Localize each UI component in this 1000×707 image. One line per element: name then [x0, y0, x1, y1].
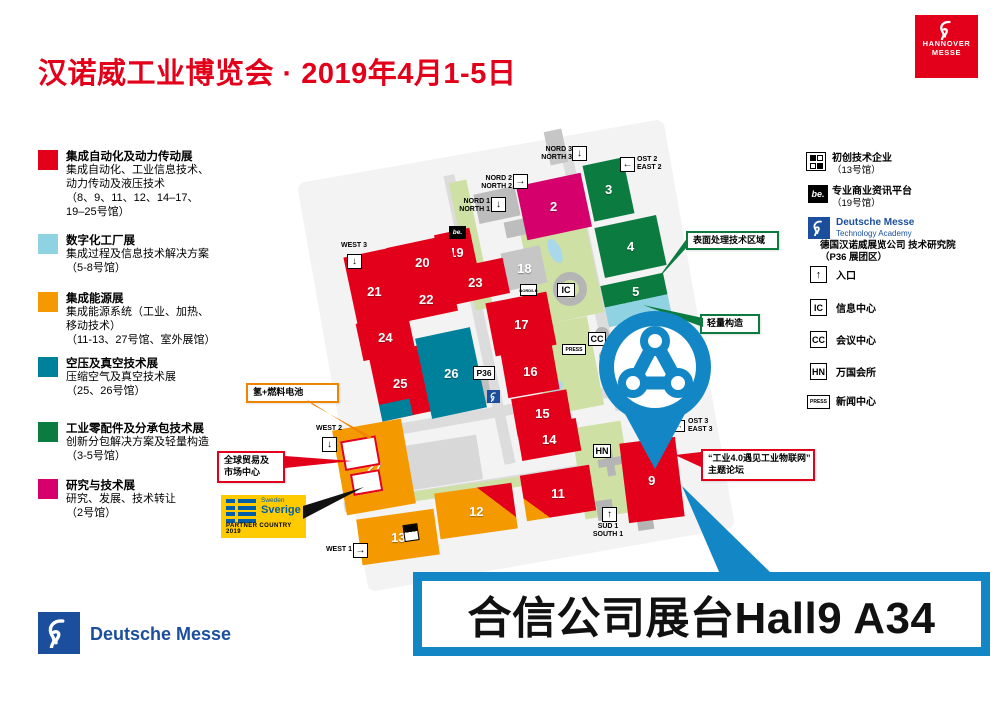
hall-27-open-area	[340, 435, 381, 471]
hannover-messe-logo: HANNOVER MESSE	[915, 15, 978, 78]
legend-item-line: 动力传动及液压技术	[66, 178, 209, 192]
map-nordlb-marker: NORD/LB	[520, 284, 537, 296]
entrance-arrow-nord1: ↓	[491, 197, 506, 212]
startup-companies-icon	[806, 152, 826, 171]
entrance-arrow-sued1: ↑	[602, 507, 617, 522]
entrance-arrow-icon: ↑	[810, 266, 827, 283]
legend-item-line: 压缩空气及真空技术展	[66, 371, 176, 385]
legend-hn-club: 万国会所	[836, 367, 876, 380]
hannover-logo-text-2: MESSE	[932, 49, 961, 58]
legend-item-title: 空压及真空技术展	[66, 357, 176, 371]
legend-be: 专业商业资讯平台（19号馆）	[832, 185, 912, 210]
legend-item-line: （2号馆）	[66, 507, 176, 521]
legend-color-swatch	[38, 479, 58, 499]
legend-startup: 初创技术企业（13号馆）	[832, 152, 892, 177]
map-info-center-marker: IC	[557, 283, 575, 297]
partner-country-sweden: SwedenSverige PARTNER COUNTRY 2019	[221, 495, 306, 538]
legend-convention-center: 会议中心	[836, 335, 876, 348]
entrance-label-west1: WEST 1	[318, 546, 352, 554]
entrance-arrow-west2: ↓	[322, 437, 337, 452]
deutsche-messe-head-icon	[44, 618, 74, 648]
legend-item-line: 创新分包解决方案及轻量构造	[66, 436, 209, 450]
legend-item: 数字化工厂展集成过程及信息技术解决方案（5-8号馆）	[38, 234, 318, 276]
map-be-marker: be.	[449, 226, 466, 239]
press-center-icon: PRESS	[807, 395, 830, 409]
entrance-arrow-west3: ↓	[347, 254, 362, 269]
entrance-arrow-ost2: ←	[620, 157, 635, 172]
legend-item: 集成能源展集成能源系统（工业、加热、移动技术）（11-13、27号馆、室外展馆）	[38, 292, 318, 348]
legend-item-title: 研究与技术展	[66, 479, 176, 493]
legend-item-line: 19–25号馆）	[66, 206, 209, 220]
legend-item-line: 集成过程及信息技术解决方案	[66, 248, 209, 262]
booth-banner: 合信公司展台Hall9 A34	[413, 572, 990, 656]
map-dm-academy-marker	[487, 390, 500, 403]
booth-banner-text: 合信公司展台Hall9 A34	[468, 582, 936, 646]
info-center-icon: IC	[810, 299, 827, 316]
entrance-arrow-nord2: →	[513, 174, 528, 189]
legend-item-title: 集成能源展	[66, 292, 216, 306]
hall-13-startup-icon	[403, 523, 420, 542]
entrance-arrow-nord3: ↓	[572, 146, 587, 161]
legend-color-swatch	[38, 357, 58, 377]
legend-item-line: 研究、发展、技术转让	[66, 493, 176, 507]
legend-item-line: （25、26号馆）	[66, 385, 176, 399]
legend-item-title: 数字化工厂展	[66, 234, 209, 248]
hall-27: 27	[332, 419, 416, 516]
legend-item: 集成自动化及动力传动展集成自动化、工业信息技术、动力传动及液压技术（8、9、11…	[38, 150, 318, 219]
legend-item-line: 移动技术）	[66, 320, 216, 334]
entrance-label-nord2: NORD 2NORTH 2	[474, 175, 512, 191]
legend-entrance: 入口	[836, 270, 856, 283]
hall-27-open-area	[350, 469, 383, 496]
entrance-label-sued1: SÜD 1SOUTH 1	[588, 523, 628, 539]
be-platform-icon: be.	[808, 185, 828, 203]
sweden-flag	[226, 512, 256, 523]
legend-color-swatch	[38, 234, 58, 254]
legend-color-swatch	[38, 422, 58, 442]
map-press-marker: PRESS	[562, 344, 586, 355]
location-pin	[592, 303, 724, 475]
hannover-head-icon	[937, 20, 957, 40]
legend-item-line: （3-5号馆）	[66, 450, 209, 464]
legend-item-line: （8、9、11、12、14–17、	[66, 192, 209, 206]
page-title: 汉诺威工业博览会 · 2019年4月1-5日	[38, 50, 516, 92]
deutsche-messe-academy-icon	[808, 217, 830, 239]
hn-club-icon: HN	[810, 363, 827, 380]
entrance-label-nord3: NORD 3NORTH 3	[534, 146, 572, 162]
legend-press-center: 新闻中心	[836, 396, 876, 409]
entrance-label-west3: WEST 3	[340, 242, 368, 250]
legend-item-line: （5-8号馆）	[66, 262, 209, 276]
callout-hydrogen: 氢+燃料电池	[246, 383, 339, 403]
legend-academy-brand: Deutsche Messe Technology Academy	[836, 216, 914, 239]
legend-color-swatch	[38, 150, 58, 170]
legend-academy-text: 德国汉诺威展览公司 技术研究院（P36 展团区）	[820, 240, 956, 265]
legend-item-line: 集成自动化、工业信息技术、	[66, 164, 209, 178]
legend-item-title: 集成自动化及动力传动展	[66, 150, 209, 164]
entrance-label-nord1: NORD 1NORTH 1	[452, 198, 490, 214]
legend-item-line: 集成能源系统（工业、加热、	[66, 306, 216, 320]
entrance-label-ost2: OST 2EAST 2	[637, 156, 675, 172]
deutsche-messe-logo	[38, 612, 80, 654]
entrance-label-west2: WEST 2	[314, 425, 344, 433]
legend-info-center: 信息中心	[836, 303, 876, 316]
legend-color-swatch	[38, 292, 58, 312]
legend-item-title: 工业零配件及分承包技术展	[66, 422, 209, 436]
entrance-arrow-west1: →	[353, 543, 368, 558]
callout-surface-treatment: 表面处理技术区域	[686, 231, 779, 250]
map-p36-marker: P36	[473, 366, 495, 380]
callout-global-trade: 全球贸易及市场中心	[217, 451, 285, 483]
convention-center-icon: CC	[810, 331, 827, 348]
sweden-flag	[226, 499, 256, 510]
deutsche-messe-brand: Deutsche Messe	[90, 624, 231, 645]
legend-item-line: （11-13、27号馆、室外展馆）	[66, 334, 216, 348]
